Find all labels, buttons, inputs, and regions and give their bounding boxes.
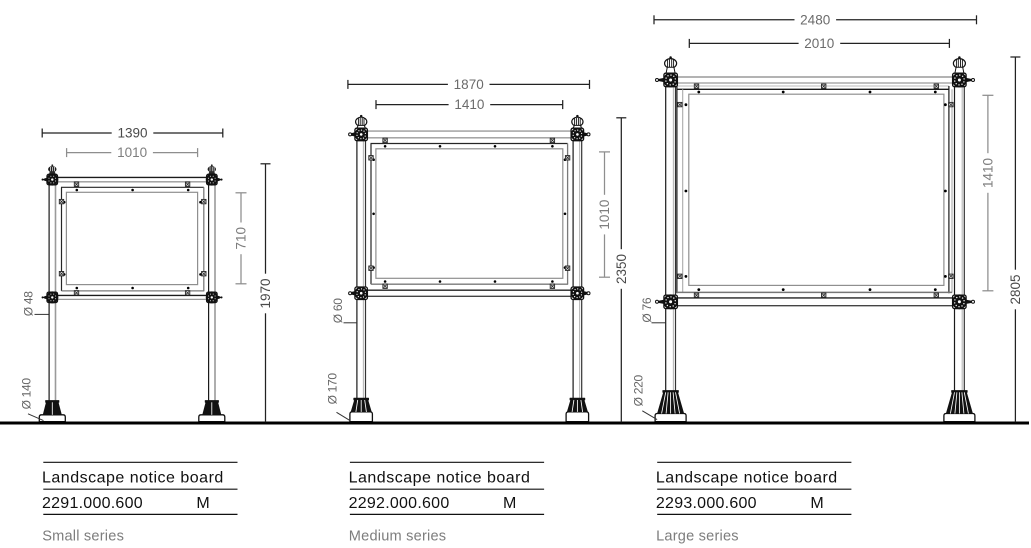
svg-text:710: 710 — [234, 227, 249, 250]
svg-text:1390: 1390 — [117, 126, 147, 141]
svg-text:M: M — [196, 495, 209, 512]
svg-text:1410: 1410 — [454, 97, 484, 112]
svg-text:2010: 2010 — [804, 36, 834, 51]
svg-text:2291.000.600: 2291.000.600 — [42, 495, 143, 512]
svg-text:Ø 76: Ø 76 — [640, 297, 654, 322]
svg-text:2293.000.600: 2293.000.600 — [656, 495, 757, 512]
svg-text:Small series: Small series — [42, 528, 124, 544]
svg-text:Large series: Large series — [656, 528, 739, 544]
svg-text:M: M — [810, 495, 823, 512]
svg-text:Ø 48: Ø 48 — [21, 291, 35, 316]
svg-text:1970: 1970 — [258, 278, 273, 308]
svg-text:Landscape notice board: Landscape notice board — [42, 469, 224, 486]
svg-text:2805: 2805 — [1008, 274, 1023, 304]
svg-text:1010: 1010 — [597, 200, 612, 230]
svg-text:Ø 140: Ø 140 — [20, 378, 34, 410]
svg-text:Ø 220: Ø 220 — [632, 374, 646, 406]
svg-text:Landscape notice board: Landscape notice board — [656, 469, 838, 486]
svg-text:1010: 1010 — [117, 145, 147, 160]
svg-text:Ø 60: Ø 60 — [331, 298, 345, 323]
svg-text:2292.000.600: 2292.000.600 — [349, 495, 450, 512]
svg-text:Medium series: Medium series — [349, 528, 447, 544]
svg-text:2350: 2350 — [614, 254, 629, 284]
svg-text:1870: 1870 — [454, 77, 484, 92]
svg-text:1410: 1410 — [980, 158, 995, 188]
svg-text:Ø 170: Ø 170 — [326, 373, 340, 405]
svg-text:2480: 2480 — [800, 12, 830, 27]
svg-text:M: M — [503, 495, 516, 512]
svg-text:Landscape notice board: Landscape notice board — [349, 469, 531, 486]
